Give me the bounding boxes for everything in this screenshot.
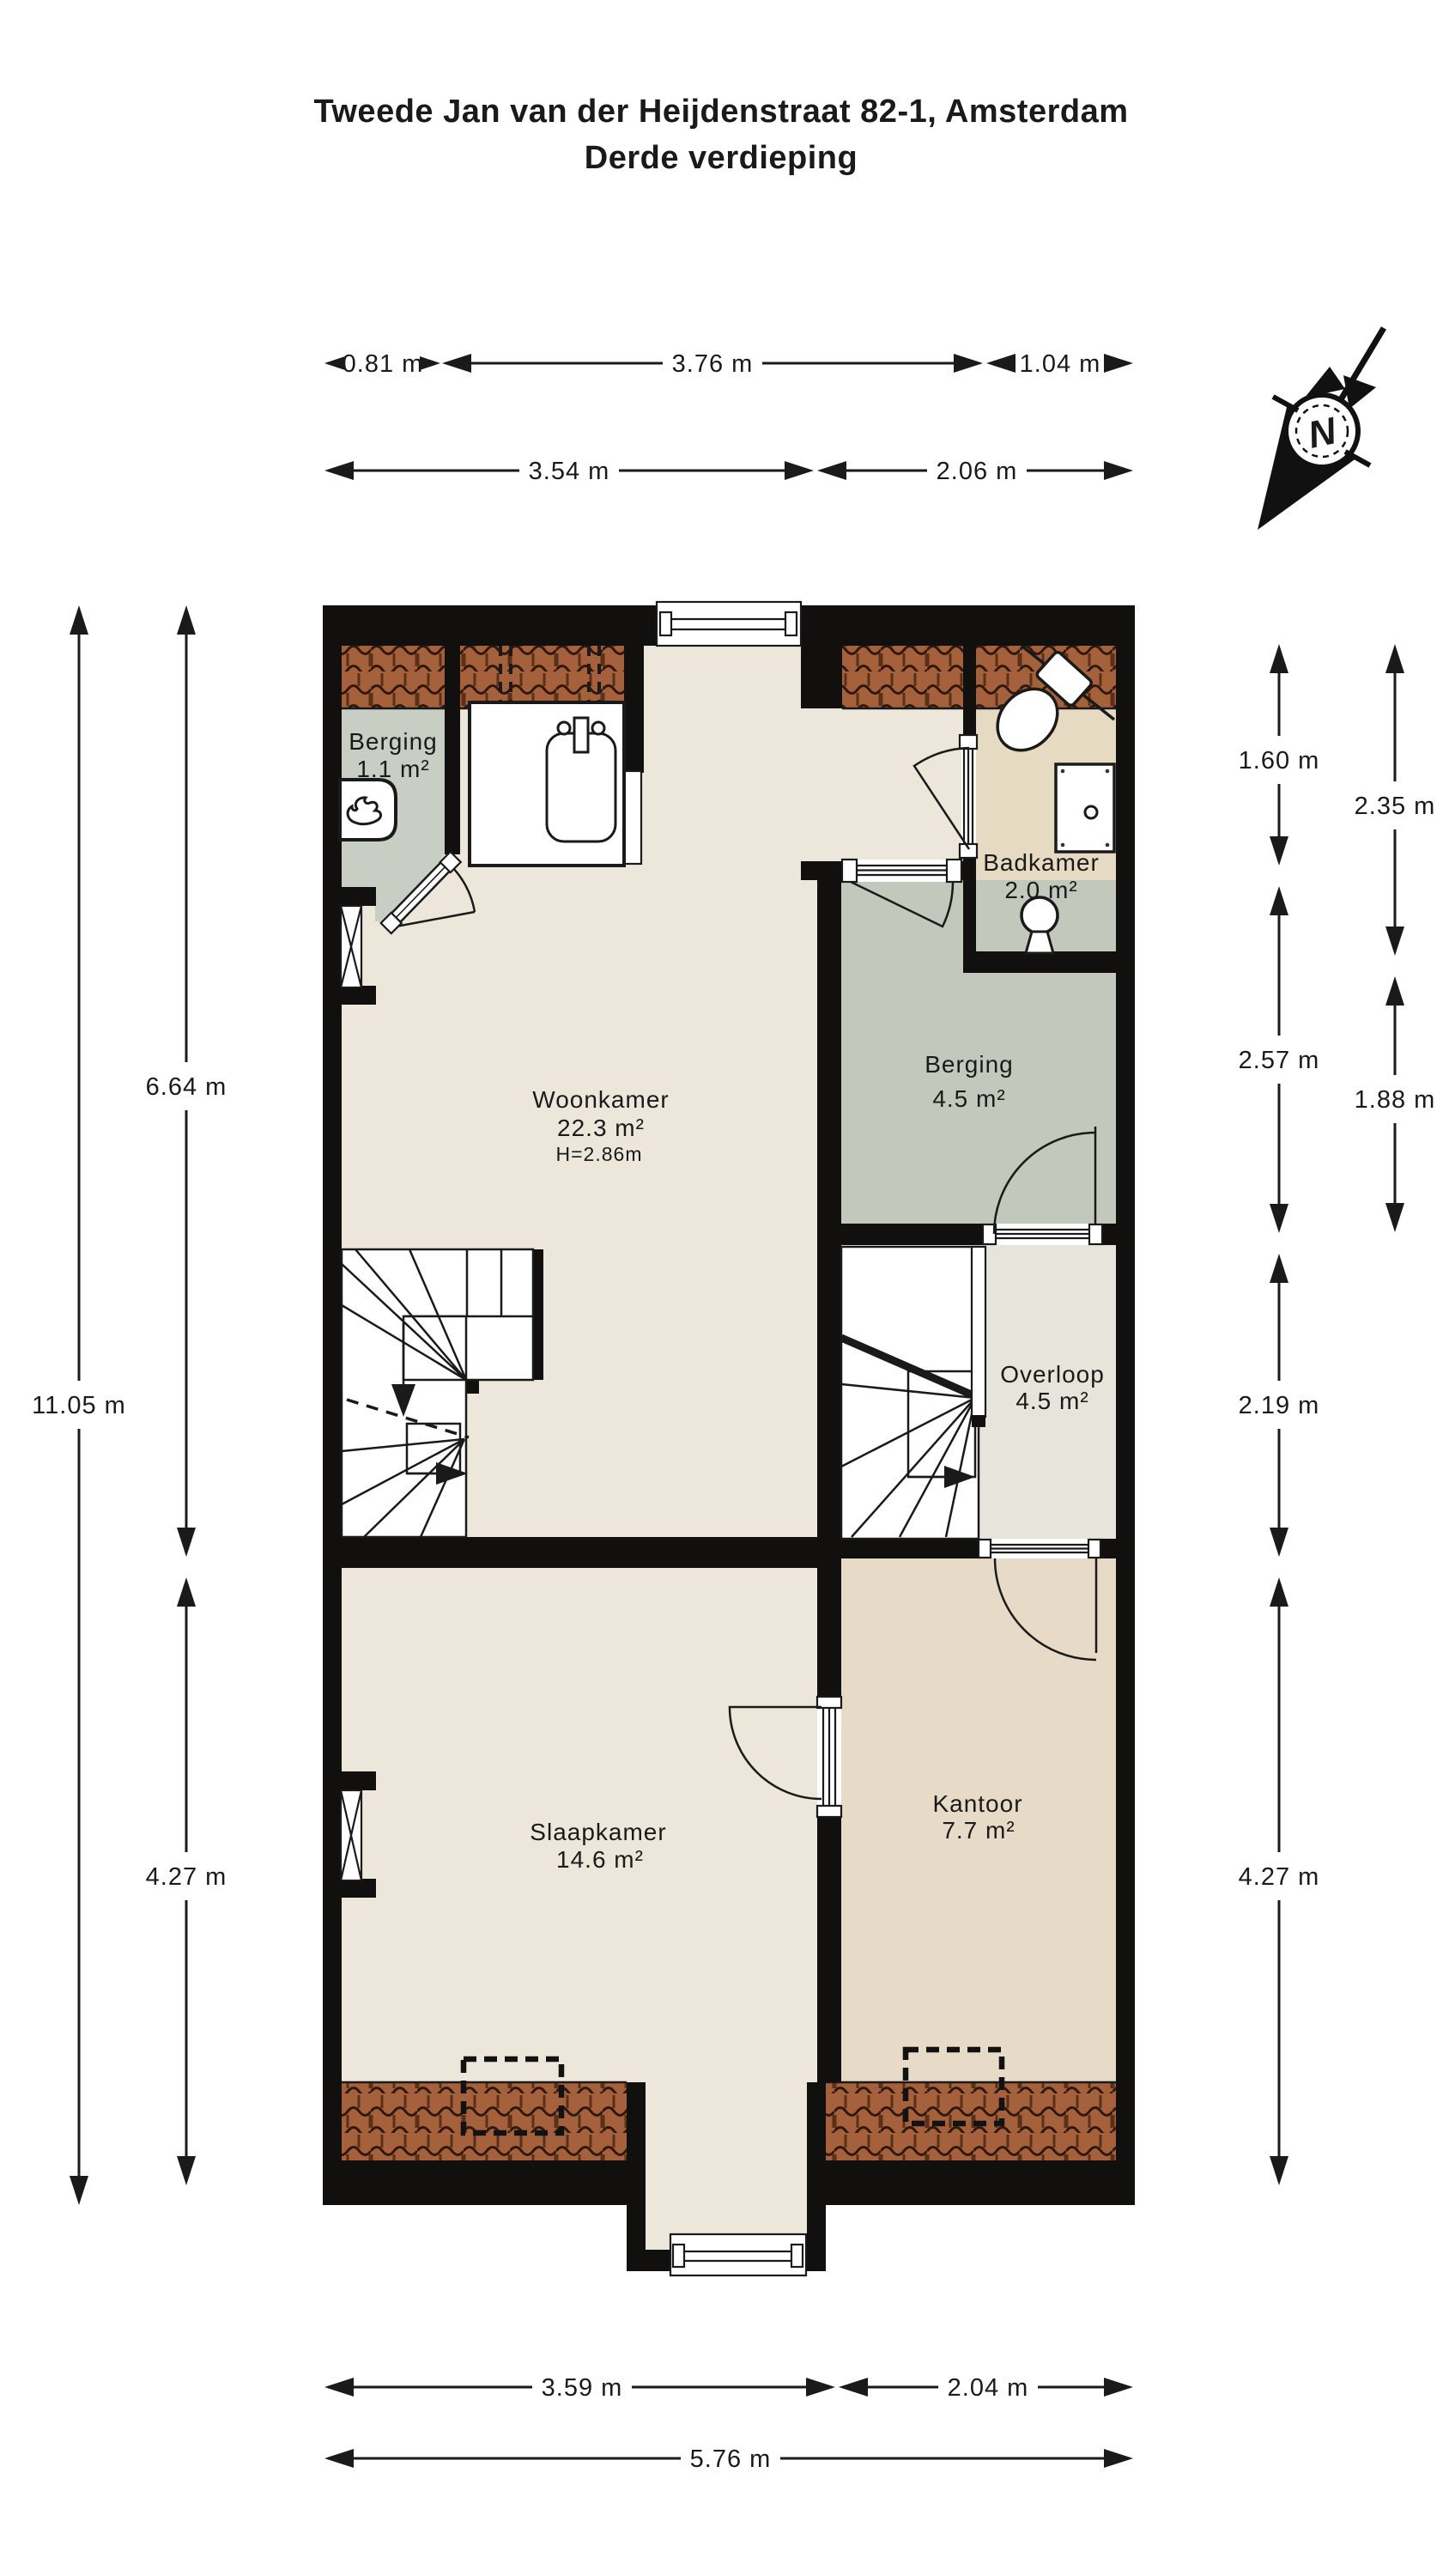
wall-badkamer-west1 — [963, 644, 976, 738]
wall-nub-shaft2-bottom — [333, 1879, 376, 1898]
dim-bottom-row1: 3.59 m 2.04 m — [324, 2374, 1133, 2402]
room-passage — [801, 707, 976, 863]
wall-overloop-south1 — [817, 1539, 985, 1558]
dim-label: 3.59 m — [542, 2374, 623, 2402]
wall-right — [1116, 605, 1135, 2205]
roof-strip-bottom-right — [826, 2082, 1116, 2160]
wall-dormer-left — [627, 2082, 646, 2271]
roof-strip-bottom-left — [342, 2082, 627, 2160]
dim-label: 2.04 m — [948, 2374, 1029, 2402]
dim-arrowhead — [1385, 976, 1404, 1005]
label-overloop-area: 4.5 m² — [1016, 1388, 1088, 1414]
dim-arrowhead — [324, 461, 354, 480]
dim-arrowhead — [177, 1528, 196, 1557]
dim-arrowhead — [1270, 1528, 1288, 1557]
dim-arrowhead — [177, 2156, 196, 2185]
label-badkamer-area: 2.0 m² — [1004, 877, 1077, 903]
dim-arrowhead — [1385, 1203, 1404, 1232]
dim-label: 4.27 m — [1239, 1863, 1320, 1891]
dim-arrowhead — [1270, 1204, 1288, 1233]
dim-arrowhead — [785, 461, 814, 480]
shower-icon — [1056, 764, 1114, 852]
floorplan-page: Tweede Jan van der Heijdenstraat 82-1, A… — [0, 0, 1449, 2576]
wall-berging-north1 — [801, 861, 844, 880]
dim-label: 5.76 m — [690, 2445, 772, 2473]
compass-icon: N — [1258, 328, 1384, 530]
label-kantoor-area: 7.7 m² — [942, 1817, 1015, 1844]
dim-left-inner: 6.64 m 4.27 m — [146, 605, 227, 2185]
shower-dot — [1061, 769, 1065, 774]
dim-label: 2.57 m — [1239, 1047, 1320, 1074]
kitchen-counter — [470, 702, 624, 866]
wall-badkamer-west2 — [963, 856, 976, 951]
label-kantoor-name: Kantoor — [932, 1790, 1022, 1817]
dim-arrowhead — [1104, 2449, 1133, 2468]
shower-dot — [1106, 769, 1110, 774]
dim-arrowhead — [1270, 836, 1288, 866]
wall-counter-stub — [624, 644, 644, 773]
dim-label: 2.19 m — [1239, 1392, 1320, 1419]
boiler — [340, 780, 396, 840]
wall-left — [323, 605, 342, 2205]
dim-arrowhead — [839, 2378, 868, 2397]
title: Tweede Jan van der Heijdenstraat 82-1, A… — [313, 94, 1128, 176]
dim-arrowhead — [1104, 354, 1133, 373]
wall-berging-klein-east — [445, 644, 460, 854]
compass-tick-nw — [1273, 397, 1298, 410]
dim-label: 3.54 m — [529, 458, 610, 485]
label-berging-name: Berging — [925, 1051, 1014, 1078]
dim-top-row2: 3.54 m 2.06 m — [324, 458, 1133, 485]
dim-top-row1: 0.81 m 3.76 m 1.04 m — [324, 350, 1133, 378]
room-dormer-bay — [646, 2082, 807, 2250]
dim-arrowhead — [1104, 2378, 1133, 2397]
dim-arrowhead — [1270, 886, 1288, 915]
door-kantoor-post-left — [979, 1540, 991, 1558]
faucet-handle-right-icon — [592, 722, 604, 734]
dim-label: 11.05 m — [32, 1392, 126, 1419]
door-berging-south-post-right — [1089, 1224, 1102, 1244]
stairs2-door-nub — [972, 1415, 985, 1427]
dim-arrowhead — [1104, 461, 1133, 480]
dim-label: 3.76 m — [672, 350, 754, 378]
dim-arrowhead — [177, 605, 196, 635]
dim-arrowhead — [1270, 2156, 1288, 2185]
wall-divider-mid — [817, 861, 841, 1539]
wall-nub-shaft1-bottom — [333, 986, 376, 1005]
wall-mid-left — [342, 1537, 817, 1568]
dim-arrowhead — [1270, 1254, 1288, 1283]
dim-label: 2.35 m — [1355, 793, 1436, 820]
label-slaapkamer-area: 14.6 m² — [556, 1846, 644, 1873]
dim-label: 1.60 m — [1239, 747, 1320, 775]
wall-bottom-left — [323, 2160, 645, 2205]
dim-label: 0.81 m — [343, 350, 424, 378]
label-woonkamer-name: Woonkamer — [532, 1086, 669, 1113]
wall-nub-shaft2-top — [333, 1771, 376, 1790]
wall-divider-low1 — [817, 1558, 841, 1704]
dim-arrowhead — [954, 354, 983, 373]
dim-left-outer: 11.05 m — [32, 605, 126, 2205]
dim-arrowhead — [806, 2378, 835, 2397]
stairs2-door-leaf — [972, 1247, 985, 1417]
page-title-line1: Tweede Jan van der Heijdenstraat 82-1, A… — [313, 94, 1128, 130]
dim-right-line2: 2.35 m 1.88 m — [1355, 644, 1436, 1232]
dim-arrowhead — [177, 1577, 196, 1607]
door-counter-leaf — [624, 771, 641, 864]
door-badkamer-post-top — [960, 735, 977, 749]
faucet-icon — [574, 718, 588, 752]
shower-drain — [1085, 806, 1097, 818]
wall-divider-low2 — [817, 1806, 841, 2082]
window-top — [657, 602, 801, 646]
dim-bottom-row2: 5.76 m — [324, 2445, 1133, 2473]
dim-label: 1.04 m — [1020, 350, 1101, 378]
pedestal-sink-icon — [1022, 897, 1058, 953]
roof-strip-top-left — [342, 644, 627, 708]
door-slaapkamer-post-bottom — [817, 1806, 841, 1817]
dim-arrowhead — [1385, 927, 1404, 956]
wall-nub-shaft1-top — [333, 887, 376, 906]
dim-label: 6.64 m — [146, 1073, 227, 1101]
wall-dormer-right — [807, 2082, 826, 2271]
dim-label: 1.88 m — [1355, 1086, 1436, 1114]
dim-arrowhead — [324, 2449, 354, 2468]
page-title-line2: Derde verdieping — [585, 140, 858, 176]
dim-arrowhead — [817, 461, 846, 480]
floorplan-drawing: Tweede Jan van der Heijdenstraat 82-1, A… — [0, 0, 1449, 2576]
label-berging-area: 4.5 m² — [932, 1085, 1005, 1112]
window-dormer — [670, 2234, 806, 2275]
label-berging-klein-area: 1.1 m² — [356, 756, 429, 782]
label-badkamer-name: Badkamer — [983, 849, 1100, 876]
label-overloop-name: Overloop — [1000, 1361, 1105, 1388]
wall-bottom-right — [826, 2160, 1135, 2205]
dim-arrowhead — [442, 354, 471, 373]
faucet-handle-left-icon — [558, 722, 570, 734]
stairs-overloop — [841, 1247, 985, 1539]
wall-berging-south2 — [1101, 1224, 1135, 1245]
dim-label: 2.06 m — [937, 458, 1018, 485]
dim-arrowhead — [324, 2378, 354, 2397]
wall-stair-east-nub — [533, 1249, 543, 1380]
door-kantoor-post-right — [1088, 1540, 1100, 1558]
pedestal-stem — [1026, 932, 1053, 953]
dim-arrowhead — [1270, 1577, 1288, 1607]
dim-label: 4.27 m — [146, 1863, 227, 1891]
dim-arrowhead — [1270, 644, 1288, 673]
label-woonkamer-height: H=2.86m — [556, 1143, 643, 1165]
wall-badkamer-south — [963, 951, 1135, 973]
dim-arrowhead — [70, 605, 88, 635]
shower-dot — [1106, 843, 1110, 848]
label-woonkamer-area: 22.3 m² — [557, 1115, 645, 1141]
door-berging-north-post-right — [947, 860, 961, 882]
door-berging-north-post-left — [842, 860, 857, 882]
label-berging-klein-name: Berging — [349, 728, 438, 755]
shower-tray — [1056, 764, 1114, 852]
dim-right-line1: 1.60 m 2.57 m 2.19 m 4.27 m — [1239, 644, 1320, 2185]
window-top-frame — [657, 602, 801, 646]
shower-dot — [1061, 843, 1065, 848]
dim-arrowhead — [1385, 644, 1404, 673]
wall-berging-south1 — [817, 1224, 985, 1245]
window-dormer-frame — [670, 2234, 806, 2275]
dim-arrowhead — [986, 354, 1016, 373]
dim-arrowhead — [70, 2176, 88, 2205]
wall-divider-top — [801, 644, 842, 708]
wall-overloop-south2 — [1101, 1539, 1135, 1558]
label-slaapkamer-name: Slaapkamer — [530, 1819, 666, 1845]
